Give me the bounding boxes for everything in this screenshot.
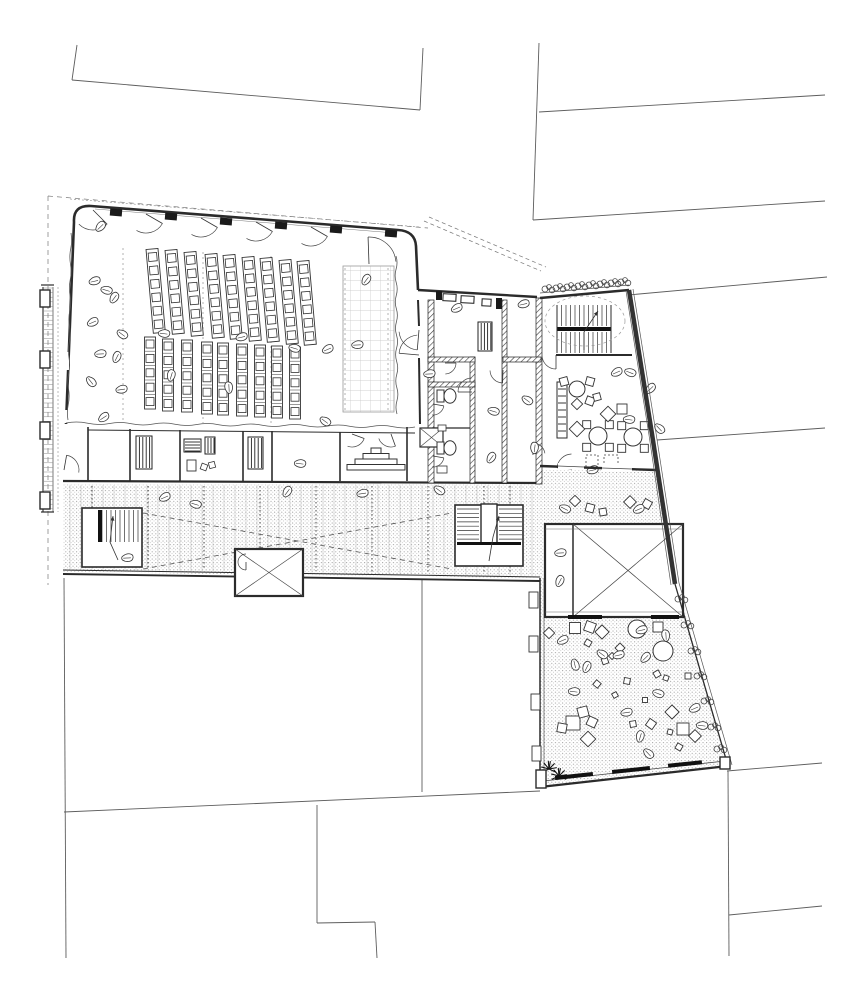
- existing-edge: [66, 422, 415, 428]
- door-swing: [417, 330, 419, 350]
- desk-row: [273, 363, 281, 371]
- desk-row: [172, 307, 181, 316]
- parcel-line: [729, 906, 822, 915]
- desk-row: [302, 291, 311, 300]
- parcel-line: [375, 922, 377, 958]
- door-swing: [352, 434, 364, 438]
- desk-row: [291, 364, 299, 372]
- furniture-item: [677, 723, 689, 735]
- parcel-line: [64, 578, 66, 958]
- hall-wall: [418, 300, 419, 326]
- shrub-icon: [699, 675, 701, 677]
- shrub-icon: [613, 282, 615, 284]
- desk-row: [282, 277, 291, 286]
- plant-icon: [487, 404, 501, 418]
- desk-row: [190, 296, 199, 305]
- door-swing: [399, 335, 417, 353]
- desk-row: [151, 279, 160, 288]
- desk-row: [256, 348, 264, 356]
- shrub-icon: [686, 624, 688, 626]
- hatched-wall: [428, 382, 475, 387]
- window-box: [443, 294, 456, 302]
- shrub-icon: [623, 281, 625, 283]
- door-swing: [399, 332, 417, 350]
- site-dashed-line: [429, 217, 546, 267]
- shrub-icon: [591, 284, 593, 286]
- shrub-icon: [547, 288, 549, 290]
- furniture-item: [577, 706, 589, 718]
- desk-row: [183, 401, 191, 409]
- shelf-unit: [248, 437, 263, 469]
- door-swing: [490, 370, 503, 383]
- desk-row: [291, 393, 299, 401]
- desk-row: [153, 306, 162, 315]
- skylight-box: [545, 524, 683, 617]
- furniture-item: [200, 463, 208, 471]
- desk-row: [219, 375, 227, 383]
- window-box: [40, 492, 50, 509]
- desk-row: [211, 298, 220, 307]
- desk-row: [183, 372, 191, 380]
- desk-row: [154, 320, 163, 329]
- furniture-item: [617, 404, 627, 414]
- desk-row: [299, 264, 308, 273]
- wall-pier: [165, 213, 178, 221]
- desk-row: [268, 329, 277, 338]
- desk-row: [146, 354, 154, 362]
- hatched-wall: [428, 357, 475, 362]
- row-top-wall: [88, 430, 415, 433]
- desk-row: [226, 272, 235, 281]
- parcel-line: [420, 48, 423, 110]
- desk-row: [146, 383, 154, 391]
- desk-row: [183, 343, 191, 351]
- window-gap: [63, 352, 69, 370]
- shelf-unit: [184, 439, 201, 452]
- desk-row: [238, 361, 246, 369]
- desk-row: [273, 392, 281, 400]
- parcel-line: [539, 95, 825, 112]
- desk-row: [228, 285, 237, 294]
- desk-row: [273, 378, 281, 386]
- dashed-fixture: [586, 455, 598, 467]
- layer-gallery-west: [40, 285, 58, 512]
- desk-row: [168, 267, 177, 276]
- desk-row: [187, 269, 196, 278]
- sink: [438, 425, 446, 431]
- shrub-icon: [693, 650, 695, 652]
- chair-item: [667, 729, 673, 735]
- shrub-icon: [569, 286, 571, 288]
- desk-row: [279, 259, 298, 344]
- cafe-table: [640, 444, 648, 452]
- shrub-icon: [602, 283, 604, 285]
- door-swing: [192, 228, 218, 238]
- desk-row: [191, 309, 200, 318]
- parcel-line: [72, 45, 77, 80]
- desk-row: [203, 403, 211, 411]
- window-glazing: [95, 209, 395, 233]
- window-box: [482, 299, 491, 306]
- layer-reading-hall: [63, 206, 420, 428]
- toilet-fixture: [444, 441, 456, 455]
- desk-row: [303, 305, 312, 314]
- desk-row: [242, 256, 261, 341]
- door-swing: [433, 404, 444, 406]
- desk-row: [256, 377, 264, 385]
- shrub-icon: [558, 287, 560, 289]
- desk-row: [245, 274, 254, 283]
- desk-row: [304, 318, 313, 327]
- wall-pier: [330, 226, 343, 234]
- 4: [363, 454, 389, 460]
- plant-icon: [518, 298, 530, 308]
- palm-plant-icon: [548, 761, 549, 769]
- chair-item: [624, 678, 631, 685]
- wall-pier: [436, 291, 442, 300]
- site-dashed-line: [70, 199, 420, 227]
- desk-row: [146, 248, 165, 333]
- door-swing: [399, 353, 419, 355]
- cafe-table: [569, 381, 585, 397]
- cafe-table: [605, 421, 613, 429]
- desk-row: [165, 249, 184, 334]
- desk-row: [266, 302, 275, 311]
- plant-icon: [322, 345, 333, 354]
- planter-box: [531, 694, 540, 710]
- chair-item: [643, 698, 648, 703]
- layer-room-row: [63, 427, 540, 483]
- parcel-line: [72, 80, 420, 110]
- door-swing: [64, 455, 67, 470]
- door-swing: [146, 214, 162, 224]
- cafe-table: [605, 443, 613, 451]
- desk-row: [265, 288, 274, 297]
- plant-icon: [611, 368, 622, 377]
- door-swing: [391, 434, 395, 446]
- parcel-line: [533, 43, 539, 220]
- 4: [371, 448, 381, 454]
- desk-row: [146, 369, 154, 377]
- desk-row: [208, 271, 217, 280]
- desk-row: [203, 359, 211, 367]
- shrub-icon: [580, 285, 582, 287]
- cafe-table: [583, 443, 591, 451]
- parcel-line: [628, 277, 827, 295]
- desk-row: [256, 391, 264, 399]
- door-swing: [368, 237, 396, 262]
- stair-void: [481, 504, 497, 543]
- furniture-item: [599, 508, 607, 516]
- window-gap: [63, 292, 69, 310]
- toilet-fixture: [437, 390, 444, 402]
- desk-row: [267, 315, 276, 324]
- furniture-item: [566, 716, 580, 730]
- desk-row: [219, 346, 227, 354]
- plant-icon: [94, 348, 107, 360]
- desk-row: [286, 317, 295, 326]
- 4: [347, 465, 405, 471]
- desk-row: [170, 280, 179, 289]
- desk-row: [297, 260, 316, 345]
- door-swing: [445, 363, 456, 374]
- desk-row: [225, 258, 234, 267]
- sink: [437, 466, 447, 473]
- plant-icon: [451, 304, 462, 313]
- hatched-wall: [470, 357, 475, 483]
- desk-row: [238, 405, 246, 413]
- desk-row: [210, 284, 219, 293]
- wall-cap: [536, 770, 546, 788]
- plant-icon: [89, 275, 101, 285]
- layer-annex-core: [399, 290, 545, 484]
- planter-box: [532, 746, 541, 761]
- desk-row: [164, 400, 172, 408]
- desk-row: [184, 251, 203, 336]
- desk-row: [300, 278, 309, 287]
- desk-row: [273, 407, 281, 415]
- door-swing: [137, 224, 163, 234]
- plant-icon: [521, 393, 534, 407]
- desk-row: [205, 253, 224, 338]
- furniture-item: [585, 503, 595, 513]
- plant-icon: [293, 457, 307, 470]
- cafe-table: [571, 398, 582, 409]
- desk-row: [256, 406, 264, 414]
- window-gap: [63, 410, 69, 423]
- door-swing: [67, 455, 79, 472]
- furniture-item: [600, 406, 616, 422]
- plant-icon: [115, 384, 128, 395]
- desk-row: [164, 385, 172, 393]
- planter-box: [529, 636, 538, 652]
- desk-row: [164, 342, 172, 350]
- desk-row: [219, 360, 227, 368]
- furniture-item: [208, 461, 215, 468]
- desk-row: [219, 404, 227, 412]
- door-swing: [256, 222, 272, 232]
- window-box: [40, 422, 50, 439]
- site-dashed-line: [424, 221, 541, 271]
- existing-edge: [395, 256, 398, 414]
- cafe-table: [624, 428, 642, 446]
- row-threshold: [63, 481, 540, 483]
- floor-plan-drawing: [0, 0, 863, 1000]
- cafe-table: [589, 427, 607, 445]
- desk-row: [291, 408, 299, 416]
- layer-terrace-long: [63, 483, 540, 596]
- desk-row: [231, 326, 240, 335]
- desk-row: [203, 345, 211, 353]
- plant-icon: [116, 327, 129, 341]
- shrub-icon: [713, 726, 715, 728]
- window-box: [461, 296, 474, 304]
- plan-root: [40, 43, 827, 958]
- desk-row: [203, 388, 211, 396]
- plant-icon: [87, 318, 98, 327]
- door-swing: [433, 456, 444, 458]
- hall-wall: [419, 358, 420, 424]
- wall-pier: [275, 222, 288, 230]
- stair-edge: [457, 542, 521, 545]
- cafe-table: [618, 422, 626, 430]
- desk-row: [171, 294, 180, 303]
- desk-row: [244, 260, 253, 269]
- desk-row: [192, 323, 201, 332]
- desk-row: [186, 255, 195, 264]
- stair-edge: [98, 510, 102, 542]
- desk-row: [285, 304, 294, 313]
- shrub-icon: [680, 598, 682, 600]
- threshold: [568, 615, 602, 619]
- plant-icon: [110, 350, 124, 364]
- plant-icon: [86, 375, 97, 388]
- annex-top-wall: [418, 290, 537, 297]
- chair-item: [663, 675, 669, 681]
- desk-row: [281, 263, 290, 272]
- desk-row: [146, 340, 154, 348]
- furniture-item: [570, 623, 581, 634]
- desk-row: [247, 287, 256, 296]
- desk-row: [262, 261, 271, 270]
- hatched-wall: [503, 357, 541, 362]
- plant-icon: [624, 365, 638, 379]
- chair-item: [685, 673, 691, 679]
- parcel-line: [727, 763, 822, 771]
- desk-row: [256, 362, 264, 370]
- desk-row: [238, 347, 246, 355]
- furniture-item: [557, 723, 567, 733]
- desk-row: [203, 374, 211, 382]
- plant-icon: [98, 412, 110, 422]
- round-table: [653, 641, 673, 661]
- parcel-line: [317, 922, 375, 923]
- door-swing: [348, 438, 365, 447]
- desk-row: [229, 299, 238, 308]
- desk-row: [189, 282, 198, 291]
- desk-row: [273, 349, 281, 357]
- cafe-table: [585, 377, 595, 387]
- furniture-item: [653, 622, 663, 632]
- palm-plant-icon: [558, 768, 559, 776]
- desk-row: [146, 398, 154, 406]
- parcel-line: [657, 428, 825, 440]
- hatched-wall: [536, 298, 542, 484]
- hatched-wall: [428, 300, 434, 483]
- parcel-line: [728, 771, 729, 956]
- wall-pier: [496, 298, 502, 309]
- desk-row: [238, 390, 246, 398]
- toilet-fixture: [444, 389, 456, 403]
- plant-icon: [484, 451, 498, 464]
- desk-row: [263, 275, 272, 284]
- chair-item: [593, 393, 602, 402]
- glass-floor: [343, 266, 394, 412]
- door-swing: [311, 227, 327, 237]
- desk-row: [250, 328, 259, 337]
- planter-box: [529, 592, 538, 608]
- furniture-item: [187, 460, 196, 471]
- wall-pier: [385, 230, 398, 238]
- desk-row: [148, 252, 157, 261]
- wall-cap: [720, 757, 730, 769]
- desk-row: [223, 254, 242, 339]
- 4: [355, 459, 397, 465]
- stair-edge: [557, 327, 611, 331]
- door-swing: [368, 237, 369, 264]
- desk-row: [238, 376, 246, 384]
- shelf-unit: [205, 437, 215, 454]
- desk-row: [183, 357, 191, 365]
- desk-row: [183, 386, 191, 394]
- door-swing: [302, 237, 328, 246]
- cafe-table: [559, 377, 569, 387]
- desk-row: [212, 311, 221, 320]
- door-swing: [247, 232, 273, 242]
- chair-item: [630, 721, 637, 728]
- wall-pier: [110, 209, 123, 217]
- wing-top-wall: [540, 290, 629, 298]
- desk-row: [249, 314, 258, 323]
- shrub-icon: [719, 748, 721, 750]
- floor-plan-canvas: [0, 0, 863, 1000]
- parcel-line: [533, 201, 825, 220]
- shrub-icon: [706, 700, 708, 702]
- parcel-line: [64, 791, 540, 812]
- desk-row: [230, 312, 239, 321]
- wall-pier: [220, 218, 233, 226]
- cafe-table: [618, 444, 626, 452]
- door-swing: [201, 218, 217, 228]
- desk-row: [248, 301, 257, 310]
- desk-row: [291, 379, 299, 387]
- desk-row: [164, 356, 172, 364]
- window-box: [40, 351, 50, 368]
- desk-row: [167, 253, 176, 262]
- threshold: [651, 615, 679, 619]
- desk-row: [207, 257, 216, 266]
- desk-row: [152, 293, 161, 302]
- door-swing: [542, 355, 556, 369]
- toilet-fixture: [437, 442, 444, 454]
- desk-row: [173, 321, 182, 330]
- shelf-unit: [478, 322, 492, 351]
- desk-row: [287, 331, 296, 340]
- desk-row: [284, 290, 293, 299]
- layer-terrace-south: [529, 470, 732, 788]
- desk-row: [305, 332, 314, 341]
- window-box: [40, 290, 50, 307]
- hatched-wall: [502, 300, 507, 483]
- desk-row: [260, 257, 279, 342]
- desk-row: [149, 266, 158, 275]
- desk-row: [213, 325, 222, 334]
